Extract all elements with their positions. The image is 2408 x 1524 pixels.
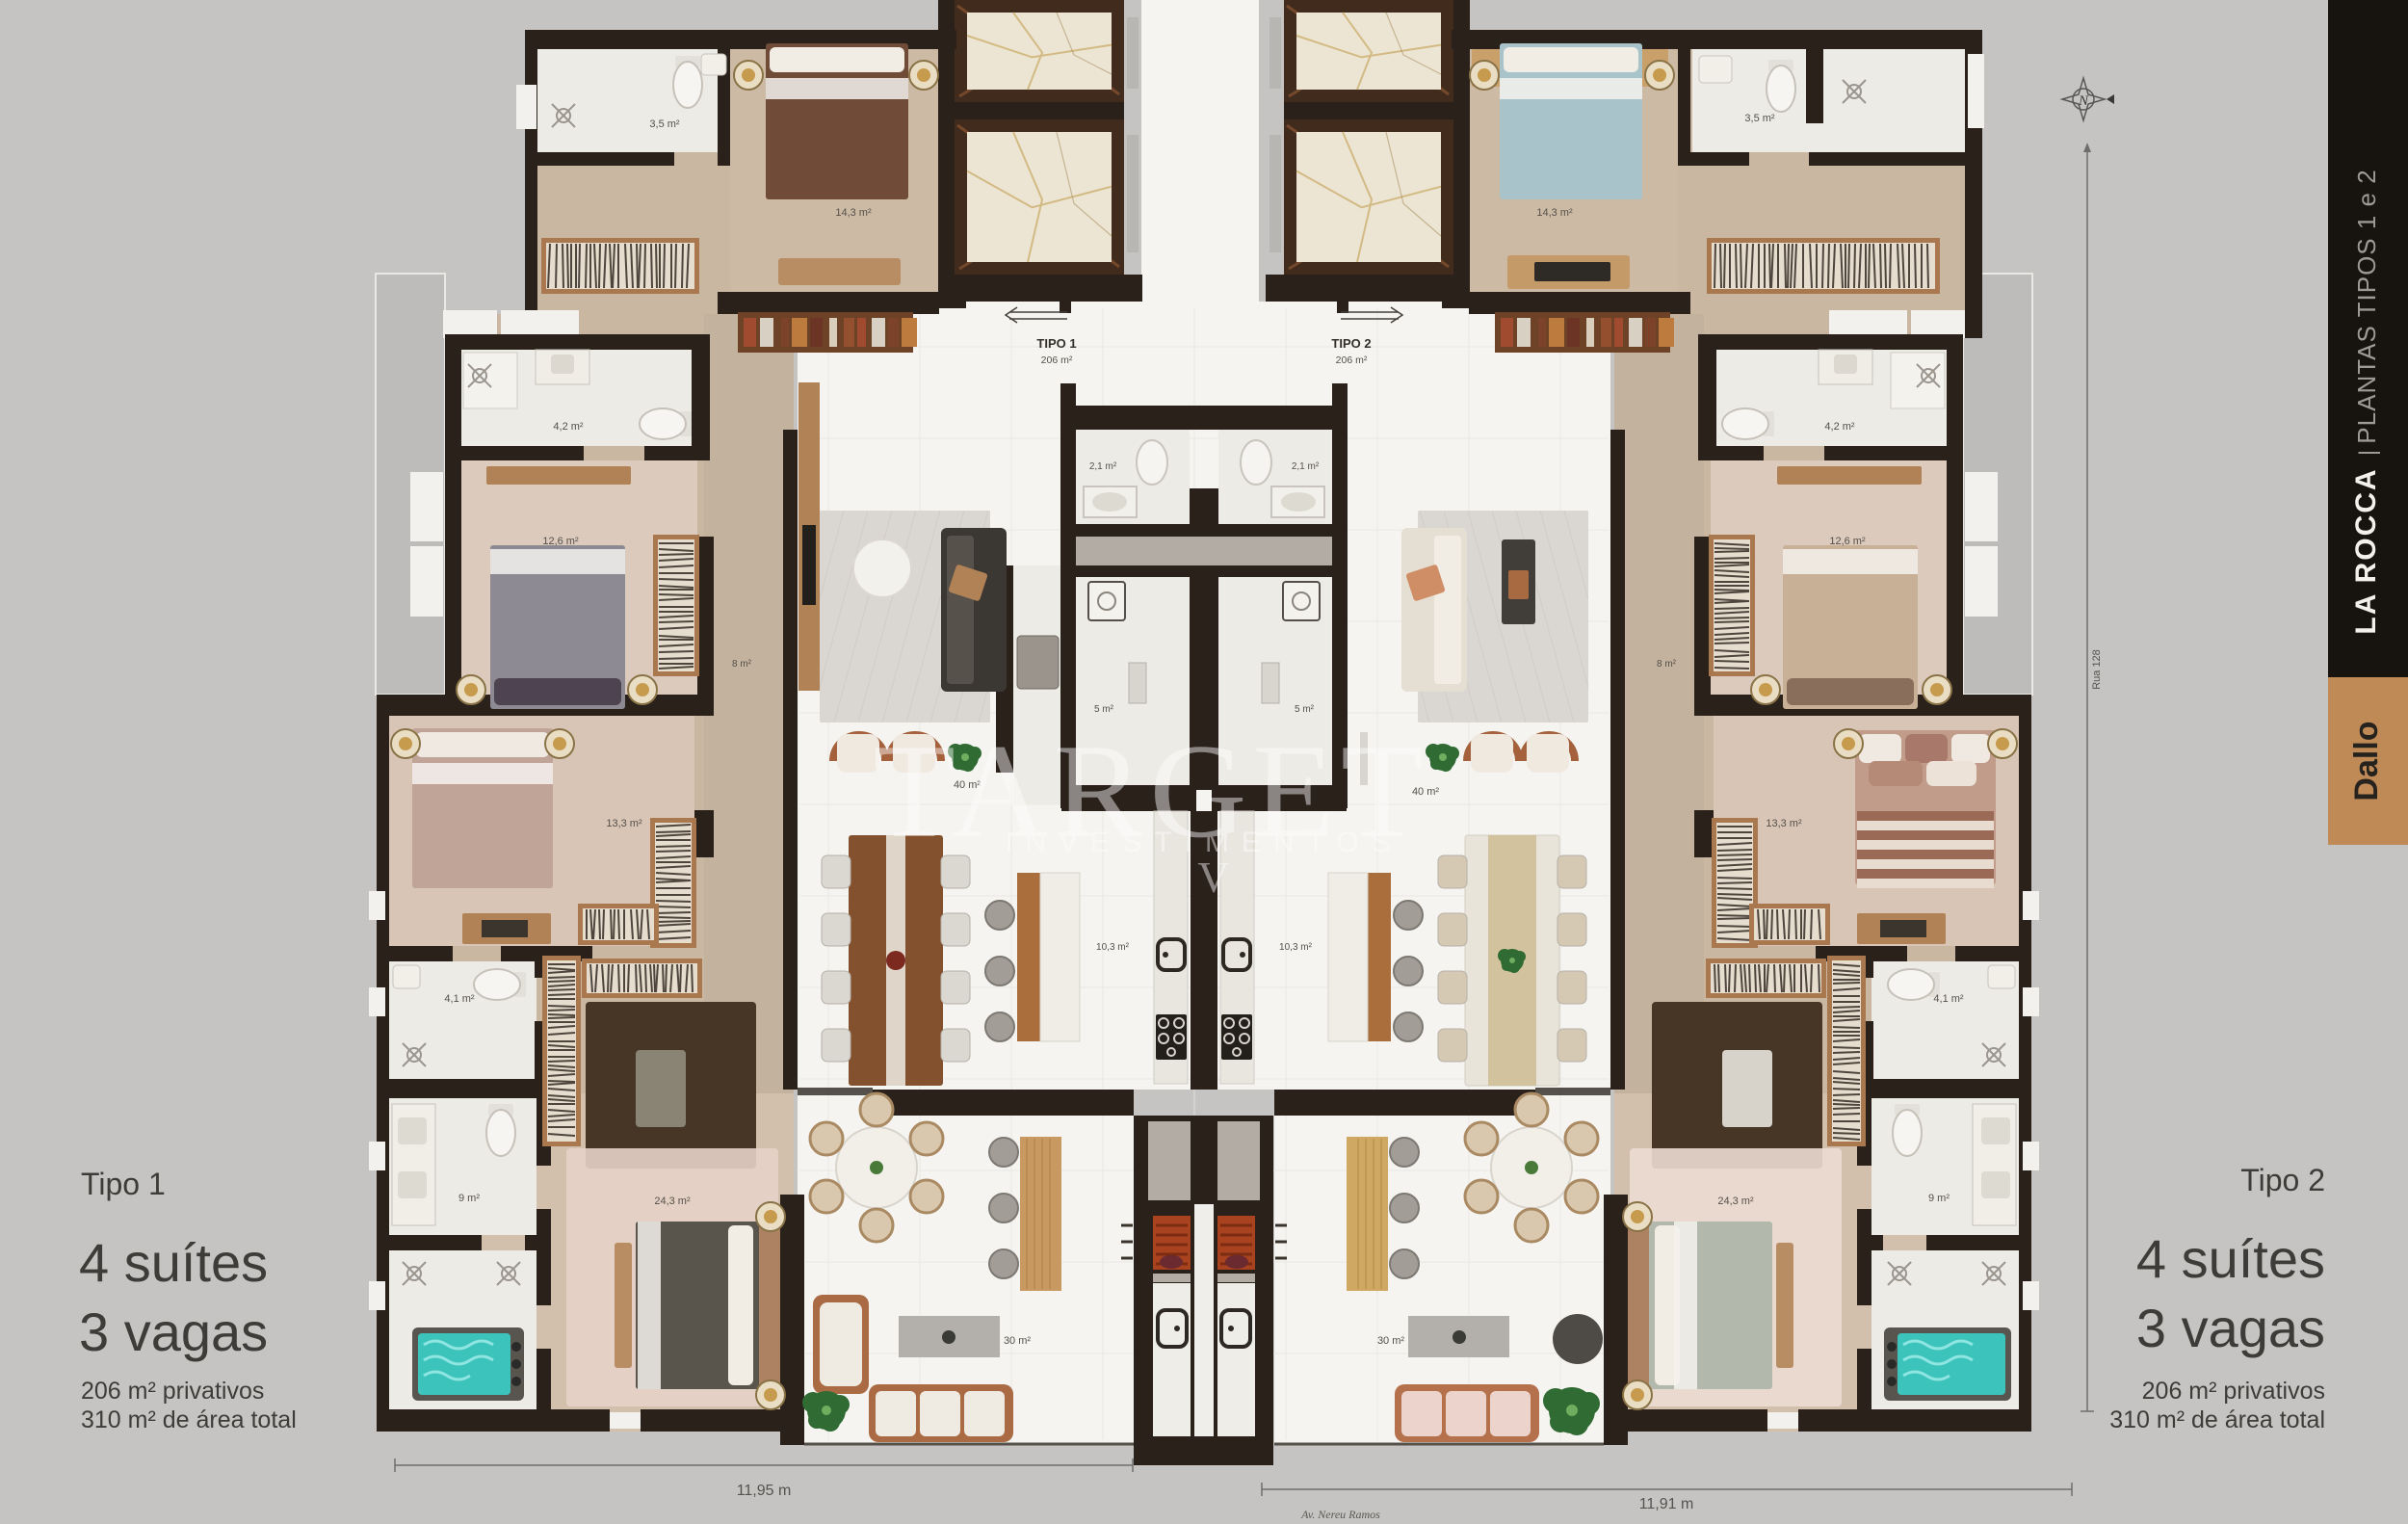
svg-text:206 m² privativos: 206 m² privativos — [81, 1378, 264, 1405]
svg-text:4 suítes: 4 suítes — [79, 1232, 268, 1293]
svg-text:5 m²: 5 m² — [1094, 704, 1114, 715]
svg-text:Av. Nereu Ramos: Av. Nereu Ramos — [1300, 1508, 1380, 1521]
svg-text:3,5 m²: 3,5 m² — [649, 118, 680, 130]
svg-text:10,3 m²: 10,3 m² — [1279, 942, 1313, 953]
svg-text:310 m² de área total: 310 m² de área total — [2109, 1406, 2325, 1433]
svg-text:11,91 m: 11,91 m — [1639, 1496, 1694, 1512]
svg-text:2,1 m²: 2,1 m² — [1292, 461, 1320, 472]
svg-text:12,6 m²: 12,6 m² — [1829, 536, 1866, 547]
svg-text:11,95 m: 11,95 m — [737, 1483, 792, 1499]
svg-text:4,1 m²: 4,1 m² — [1933, 993, 1964, 1005]
svg-text:|: | — [2355, 450, 2381, 456]
svg-text:8 m²: 8 m² — [732, 659, 752, 670]
svg-text:4,1 m²: 4,1 m² — [444, 993, 475, 1005]
svg-text:14,3 m²: 14,3 m² — [835, 207, 872, 219]
svg-text:5 m²: 5 m² — [1295, 704, 1315, 715]
svg-text:TIPO 2: TIPO 2 — [1331, 336, 1371, 351]
svg-text:12,6 m²: 12,6 m² — [542, 536, 579, 547]
svg-text:2,1 m²: 2,1 m² — [1089, 461, 1117, 472]
svg-text:4 suítes: 4 suítes — [2136, 1228, 2325, 1289]
svg-text:4,2 m²: 4,2 m² — [1824, 421, 1855, 433]
svg-text:9 m²: 9 m² — [458, 1193, 480, 1204]
svg-text:TIPO 1: TIPO 1 — [1036, 336, 1076, 351]
svg-text:Tipo 2: Tipo 2 — [2240, 1163, 2325, 1197]
svg-text:24,3 m²: 24,3 m² — [1717, 1196, 1754, 1207]
svg-text:206 m²: 206 m² — [1336, 355, 1368, 366]
svg-text:13,3 m²: 13,3 m² — [606, 818, 642, 829]
svg-text:LA ROCCA: LA ROCCA — [2350, 467, 2382, 634]
svg-text:N: N — [2078, 93, 2089, 109]
svg-text:10,3 m²: 10,3 m² — [1096, 942, 1130, 953]
svg-text:3,5 m²: 3,5 m² — [1744, 113, 1775, 124]
svg-text:310 m² de área total: 310 m² de área total — [81, 1406, 297, 1433]
svg-text:13,3 m²: 13,3 m² — [1766, 818, 1802, 829]
svg-text:30 m²: 30 m² — [1004, 1335, 1031, 1347]
svg-text:V: V — [1197, 853, 1229, 902]
svg-text:4,2 m²: 4,2 m² — [553, 421, 584, 433]
svg-text:30 m²: 30 m² — [1377, 1335, 1404, 1347]
svg-text:8 m²: 8 m² — [1657, 659, 1677, 670]
svg-text:24,3 m²: 24,3 m² — [654, 1196, 691, 1207]
svg-text:Dallo: Dallo — [2348, 721, 2385, 801]
svg-text:Rua 128: Rua 128 — [2091, 649, 2103, 690]
svg-text:206 m² privativos: 206 m² privativos — [2142, 1378, 2325, 1405]
svg-text:206 m²: 206 m² — [1041, 355, 1073, 366]
svg-text:PLANTAS TIPOS 1 e 2: PLANTAS TIPOS 1 e 2 — [2352, 169, 2381, 443]
svg-text:14,3 m²: 14,3 m² — [1536, 207, 1573, 219]
svg-text:3 vagas: 3 vagas — [2136, 1298, 2325, 1358]
svg-text:9 m²: 9 m² — [1928, 1193, 1950, 1204]
svg-text:3 vagas: 3 vagas — [79, 1301, 268, 1362]
svg-text:Tipo 1: Tipo 1 — [81, 1167, 166, 1201]
